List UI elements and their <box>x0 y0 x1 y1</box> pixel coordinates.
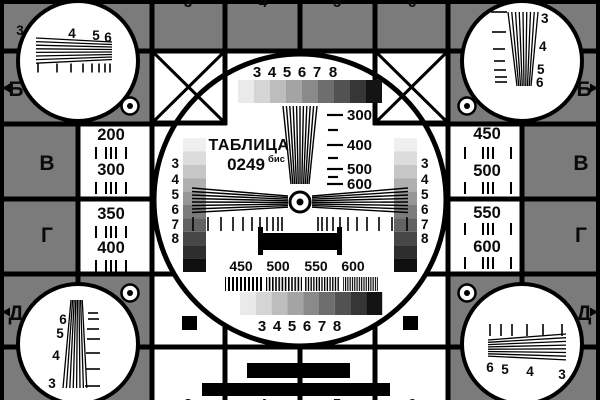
svg-text:3: 3 <box>171 156 179 171</box>
row-label: Д <box>577 302 592 325</box>
corner-circle-top-left: 3 4 5 6 <box>16 1 138 121</box>
svg-text:400: 400 <box>347 137 372 154</box>
top-grayscale-bar <box>238 80 382 103</box>
wedge-number: 5 <box>92 28 100 43</box>
wedge-number: 3 <box>541 11 549 26</box>
row-label: Б <box>576 78 591 101</box>
black-bar-short <box>247 363 350 378</box>
svg-text:7: 7 <box>313 64 321 81</box>
svg-text:3: 3 <box>421 156 429 171</box>
svg-text:450: 450 <box>229 258 253 274</box>
wedge-number: 6 <box>59 312 67 327</box>
svg-text:600: 600 <box>347 176 372 193</box>
wedge-number: 6 <box>486 360 494 375</box>
svg-text:5: 5 <box>283 64 291 81</box>
wedge-number: 3 <box>16 23 24 38</box>
row-label: Г <box>41 224 53 247</box>
corner-circle-top-right: 3 4 5 6 <box>462 1 582 121</box>
svg-text:6: 6 <box>421 202 429 217</box>
svg-text:4: 4 <box>421 172 429 187</box>
title-word: ТАБЛИЦА <box>209 137 290 154</box>
check-square-right <box>403 316 418 330</box>
right-strip-numbers: 3 4 5 6 7 8 <box>421 156 429 246</box>
wedge-number: 6 <box>536 75 544 90</box>
svg-text:500: 500 <box>266 258 290 274</box>
wedge-number: 5 <box>56 326 64 341</box>
svg-text:3: 3 <box>184 396 192 400</box>
row-label: В <box>573 152 588 175</box>
corner-circle-bottom-right: 6 5 4 3 <box>462 284 582 400</box>
wedge-number: 3 <box>558 367 566 382</box>
frequency-value: 500 <box>473 162 501 180</box>
frequency-value: 200 <box>97 126 125 144</box>
wedge-scale-labels: 300 400 500 600 <box>347 107 372 193</box>
wedge-number: 6 <box>104 30 112 45</box>
svg-text:300: 300 <box>347 107 372 124</box>
wedge-number: 4 <box>52 348 60 363</box>
wedge-number: 3 <box>48 376 56 391</box>
frequency-value: 450 <box>473 125 501 143</box>
title-suffix: бис <box>268 154 285 165</box>
wedge-number: 4 <box>68 26 76 41</box>
frequency-value: 400 <box>97 239 125 257</box>
svg-text:5: 5 <box>333 396 341 400</box>
svg-text:7: 7 <box>171 217 179 232</box>
svg-text:4: 4 <box>268 64 277 81</box>
left-strip-numbers: 3 4 5 6 7 8 <box>171 156 179 246</box>
row-label: В <box>39 152 54 175</box>
registration-target <box>122 98 139 115</box>
svg-text:5: 5 <box>333 0 341 11</box>
row-label: Д <box>9 302 24 325</box>
wedge-number: 4 <box>539 39 547 54</box>
svg-text:8: 8 <box>329 64 337 81</box>
frequency-value: 600 <box>473 238 501 256</box>
svg-text:3: 3 <box>258 318 266 335</box>
svg-text:5: 5 <box>421 187 429 202</box>
svg-text:6: 6 <box>171 202 179 217</box>
svg-text:5: 5 <box>288 318 296 335</box>
frequency-burst-strip <box>225 277 378 291</box>
svg-text:4: 4 <box>259 396 268 400</box>
svg-text:550: 550 <box>304 258 328 274</box>
registration-target <box>459 285 476 302</box>
black-bar-long <box>202 383 390 396</box>
tv-test-card: 3 4 5 6 3 4 5 6 <box>0 0 600 400</box>
bottom-grayscale-bar <box>240 292 382 315</box>
registration-target <box>122 285 139 302</box>
row-label: Г <box>575 224 587 247</box>
svg-text:600: 600 <box>341 258 365 274</box>
svg-text:7: 7 <box>318 318 326 335</box>
test-card-canvas: 3 4 5 6 3 4 5 6 <box>0 0 600 400</box>
svg-text:8: 8 <box>421 231 429 246</box>
wedge-number: 4 <box>526 364 534 379</box>
frequency-value: 300 <box>97 161 125 179</box>
row-label: Б <box>8 78 23 101</box>
svg-text:4: 4 <box>259 0 268 11</box>
frequency-value: 350 <box>97 205 125 223</box>
svg-text:8: 8 <box>171 231 179 246</box>
svg-text:6: 6 <box>303 318 311 335</box>
registration-target <box>459 98 476 115</box>
svg-text:8: 8 <box>333 318 341 335</box>
svg-text:5: 5 <box>171 187 179 202</box>
svg-text:4: 4 <box>273 318 282 335</box>
corner-circle-bottom-left: 6 5 4 3 <box>18 284 138 400</box>
svg-text:6: 6 <box>408 396 416 400</box>
title-number: 0249 <box>227 155 265 174</box>
svg-text:3: 3 <box>184 0 192 11</box>
svg-text:4: 4 <box>171 172 179 187</box>
svg-text:6: 6 <box>298 64 306 81</box>
svg-text:3: 3 <box>253 64 261 81</box>
svg-text:7: 7 <box>421 217 429 232</box>
svg-text:6: 6 <box>408 0 416 11</box>
center-target <box>290 192 310 212</box>
wedge-number: 5 <box>501 362 509 377</box>
check-square-left <box>182 316 197 330</box>
frequency-value: 550 <box>473 204 501 222</box>
